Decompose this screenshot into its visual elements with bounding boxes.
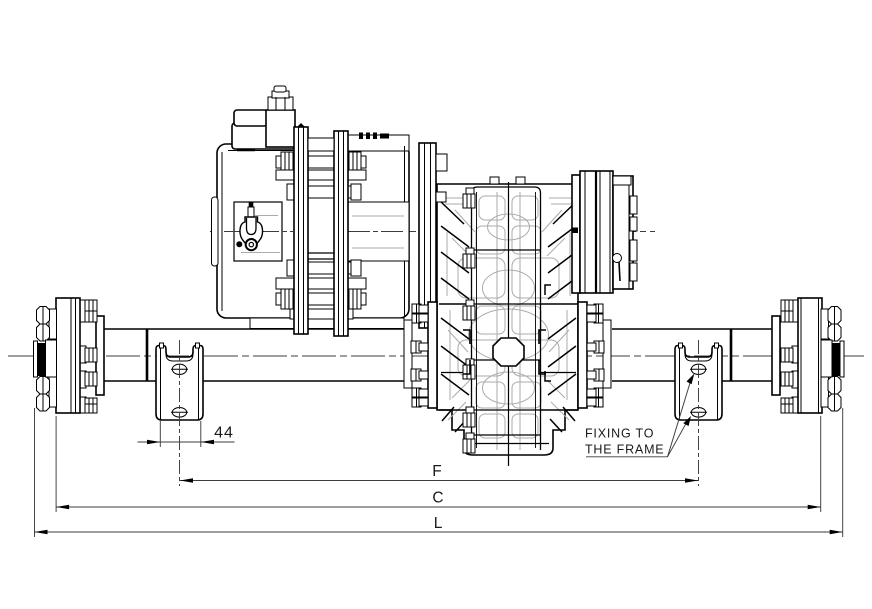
svg-text:THE FRAME: THE FRAME: [585, 443, 664, 457]
svg-text:L: L: [434, 515, 443, 532]
svg-text:F: F: [432, 463, 441, 480]
svg-text:C: C: [432, 490, 443, 507]
svg-text:FIXING TO: FIXING TO: [585, 427, 654, 441]
svg-text:44: 44: [214, 425, 234, 442]
